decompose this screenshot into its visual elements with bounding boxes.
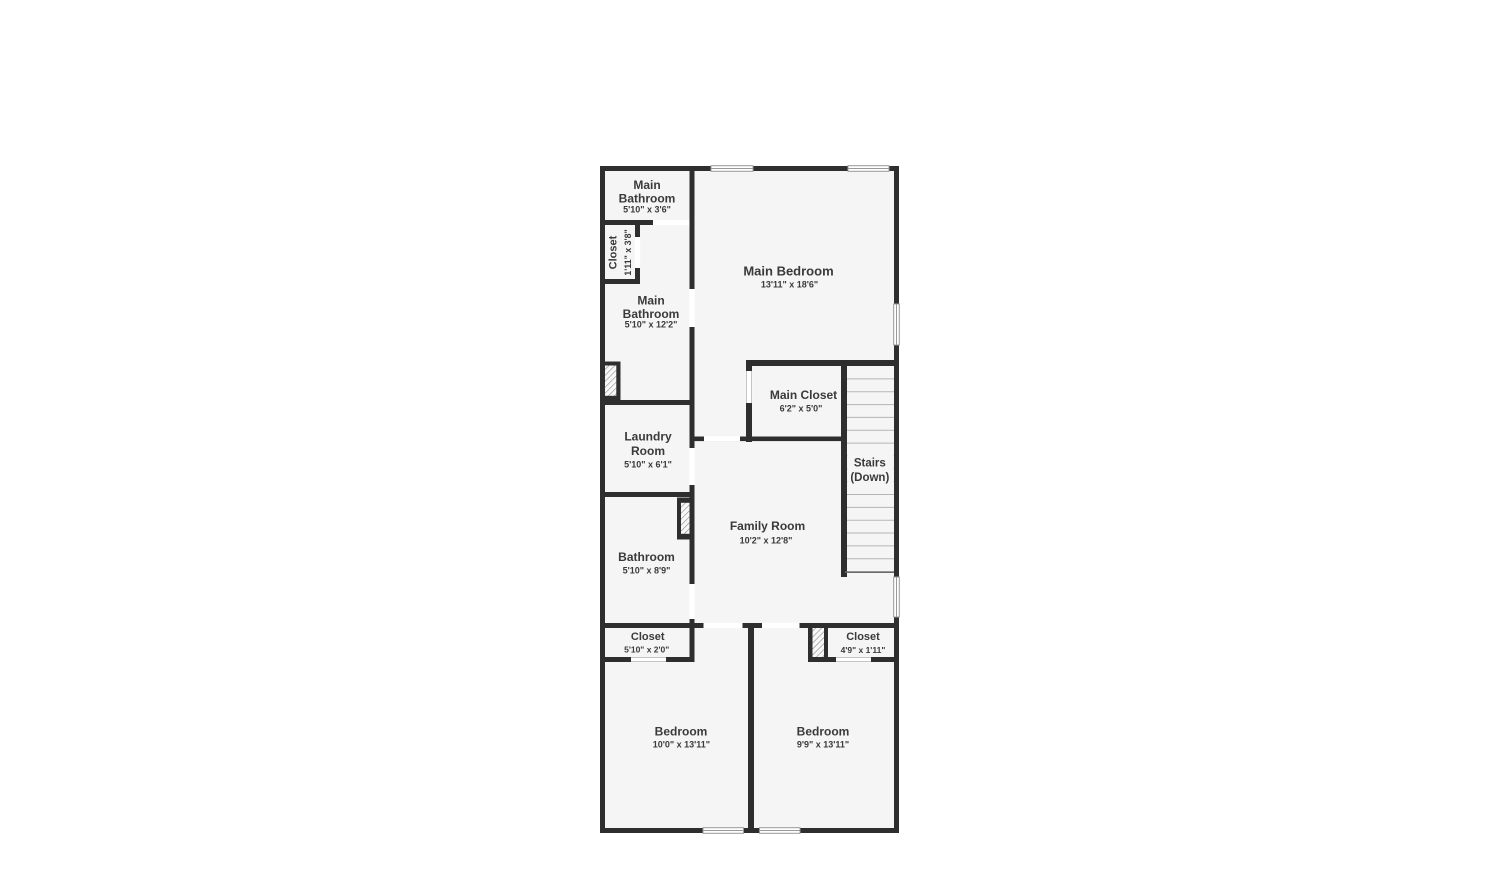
svg-text:10'2" x 12'8": 10'2" x 12'8" [740,535,793,545]
svg-text:1'11" x 3'8": 1'11" x 3'8" [623,229,633,275]
svg-text:Bathroom: Bathroom [619,192,676,206]
svg-text:Main Bedroom: Main Bedroom [743,264,833,279]
svg-text:Main Closet: Main Closet [770,388,837,402]
svg-text:Laundry: Laundry [624,430,672,444]
svg-text:5'10" x 2'0": 5'10" x 2'0" [624,644,669,654]
svg-text:(Down): (Down) [850,472,889,484]
svg-text:9'9" x 13'11": 9'9" x 13'11" [797,739,849,749]
svg-text:Closet: Closet [846,631,880,643]
svg-text:Bathroom: Bathroom [618,550,675,564]
svg-text:Bedroom: Bedroom [797,725,850,739]
svg-text:5'10" x 3'6": 5'10" x 3'6" [623,205,671,215]
svg-text:Bedroom: Bedroom [655,725,708,739]
svg-text:6'2" x 5'0": 6'2" x 5'0" [780,404,823,414]
svg-text:Main: Main [637,294,664,308]
svg-text:Room: Room [631,444,665,458]
svg-text:Closet: Closet [631,631,665,643]
svg-text:13'11" x 18'6": 13'11" x 18'6" [761,280,818,290]
svg-text:5'10" x 6'1": 5'10" x 6'1" [624,460,672,470]
svg-text:10'0" x 13'11": 10'0" x 13'11" [653,739,710,749]
svg-text:Stairs: Stairs [854,457,886,469]
svg-text:Main: Main [633,178,660,192]
svg-text:5'10" x 8'9": 5'10" x 8'9" [623,566,671,576]
svg-text:Closet: Closet [608,235,620,269]
svg-text:Family Room: Family Room [730,519,805,533]
svg-text:5'10" x 12'2": 5'10" x 12'2" [625,320,678,330]
svg-text:4'9" x 1'11": 4'9" x 1'11" [841,645,886,655]
